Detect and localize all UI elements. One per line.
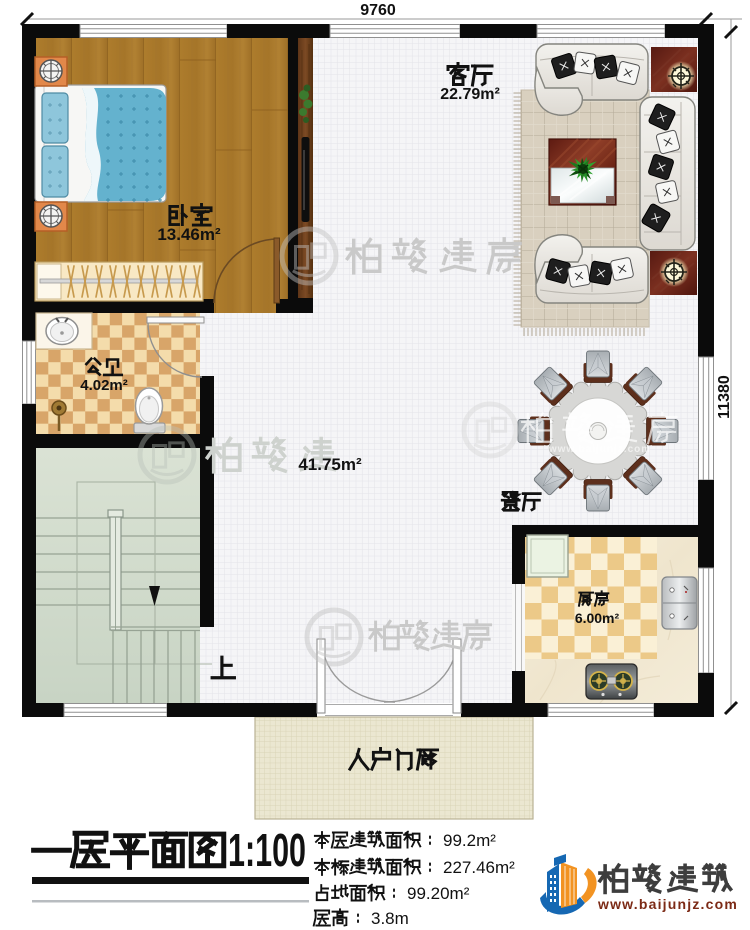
svg-text:1:100: 1:100 — [228, 824, 306, 876]
svg-text:13.46m²: 13.46m² — [157, 225, 221, 244]
svg-text:11380: 11380 — [716, 375, 733, 419]
svg-text:227.46m²: 227.46m² — [443, 858, 515, 877]
svg-text:3.8m: 3.8m — [371, 909, 409, 928]
svg-text:4.02m²: 4.02m² — [80, 377, 128, 394]
svg-text:41.75m²: 41.75m² — [298, 455, 362, 474]
svg-text:6.00m²: 6.00m² — [575, 610, 620, 626]
svg-text:9760: 9760 — [360, 2, 396, 19]
svg-text:www.baijunjz.com: www.baijunjz.com — [548, 444, 651, 455]
svg-text:www.baijunjz.com: www.baijunjz.com — [597, 896, 738, 912]
svg-text:99.20m²: 99.20m² — [407, 884, 470, 903]
svg-text:99.2m²: 99.2m² — [443, 831, 496, 850]
svg-text:22.79m²: 22.79m² — [440, 86, 500, 103]
